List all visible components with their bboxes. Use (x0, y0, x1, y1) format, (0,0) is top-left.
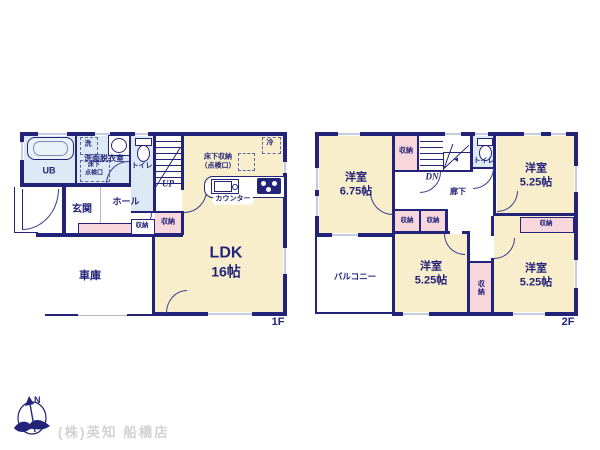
toilet-bowl-icon (137, 145, 150, 162)
room-ne-size: 5.25帖 (520, 176, 552, 190)
wall (493, 132, 496, 216)
floorplan-canvas: UB 洗 洗面脱衣室 床下 点検口 トイレ UP 床下収納 （点検口） 冷 カウ… (0, 0, 600, 450)
wall (417, 132, 419, 172)
window (574, 260, 578, 288)
wall (491, 258, 494, 312)
wall (470, 261, 491, 263)
compass-icon: N (10, 392, 58, 444)
wall (419, 209, 421, 233)
wall (181, 132, 184, 190)
porch-edge (14, 232, 38, 233)
label-ub: UB (43, 165, 56, 176)
compass-arrow (25, 396, 34, 406)
window (551, 132, 566, 136)
label-closet-nw: 収納 (399, 148, 413, 157)
wall (75, 136, 77, 183)
label-toilet-1f: トイレ (132, 163, 153, 172)
label-garage: 車庫 (79, 270, 101, 284)
window (208, 312, 252, 316)
window (315, 168, 319, 190)
balcony-wall (315, 236, 317, 314)
wall (467, 231, 470, 312)
window (38, 132, 67, 136)
window (283, 248, 287, 274)
wall (392, 233, 395, 316)
garage-front-line (45, 314, 78, 316)
label-dn: DN (426, 171, 439, 182)
ldk-name: LDK (210, 243, 243, 263)
window (315, 196, 319, 216)
wall (445, 209, 448, 233)
window (524, 132, 541, 136)
kitchen-sink-inner (214, 181, 232, 192)
label-closet-se: 収納 (540, 220, 553, 228)
balcony-door (332, 233, 358, 237)
stairs-down (420, 136, 443, 169)
underfloor-storage-box (238, 153, 255, 171)
faucet-icon (232, 184, 238, 190)
room-ne-name: 洋室 (520, 162, 552, 176)
wall (392, 132, 395, 233)
label-hallway: 廊下 (450, 187, 466, 197)
garage-front-line (127, 314, 152, 316)
balcony-wall (315, 312, 395, 314)
wall (181, 211, 184, 235)
door-arc (22, 189, 59, 230)
entrance-step-line (100, 187, 101, 223)
floor2-label: 2F (562, 316, 575, 330)
label-underfloor1: 床下収納 (204, 154, 232, 163)
wall (62, 187, 66, 233)
label-room-c: 洋室 5.25帖 (415, 260, 447, 288)
label-hall: ホール (112, 196, 139, 207)
window (338, 132, 360, 136)
room-nw-name: 洋室 (340, 171, 372, 185)
label-counter: カウンター (213, 196, 254, 205)
sink-bowl (111, 138, 127, 153)
burner (266, 187, 271, 192)
label-up: UP (162, 178, 174, 189)
wall (393, 170, 419, 172)
window (403, 312, 429, 316)
label-balcony: バルコニー (334, 272, 376, 283)
label-closet-ldk: 収納 (161, 219, 175, 228)
label-closet-hall: 収納 (136, 222, 149, 230)
wall (36, 233, 183, 237)
wall (574, 132, 578, 316)
label-inspect2: 点検口 (85, 170, 103, 178)
ldk-size: 16帖 (210, 263, 243, 281)
room-se-name: 洋室 (520, 262, 552, 276)
label-ldk: LDK 16帖 (210, 243, 243, 281)
garage-opening (78, 315, 127, 316)
floor1-label: 1F (272, 316, 285, 330)
company-label: (株)英知 船橋店 (58, 421, 170, 441)
window (20, 142, 24, 160)
door-arc (473, 168, 494, 189)
label-fridge: 冷 (267, 140, 274, 149)
room-se-size: 5.25帖 (520, 276, 552, 290)
label-underfloor2: （点検口） (201, 163, 236, 172)
window (283, 162, 287, 173)
label-washer: 洗 (85, 141, 92, 150)
compass-bird (14, 420, 50, 432)
door-leaf (22, 189, 23, 229)
stairs-arrow: ◄ (453, 157, 460, 166)
label-toilet-2f: トイレ (474, 158, 495, 167)
label-closet-a: 収納 (401, 217, 414, 225)
bathtub-inner (33, 141, 68, 156)
label-room-se: 洋室 5.25帖 (520, 262, 552, 290)
burner (272, 181, 277, 186)
window (513, 312, 545, 316)
porch-edge (14, 187, 15, 233)
compass-north-label: N (34, 395, 41, 405)
wall (493, 213, 578, 216)
wall (152, 235, 155, 312)
burner (261, 181, 266, 186)
window (445, 132, 461, 136)
wall (393, 231, 450, 234)
label-closet-mid: 収納 (476, 280, 485, 296)
window (135, 132, 148, 136)
wall (283, 132, 287, 316)
window (475, 132, 488, 136)
window (574, 166, 578, 192)
label-room-nw: 洋室 6.75帖 (340, 171, 372, 199)
label-room-ne: 洋室 5.25帖 (520, 162, 552, 190)
label-inspect1: 床下 (88, 162, 100, 170)
wall (153, 211, 184, 213)
label-entrance: 玄関 (72, 204, 92, 217)
room-nw-size: 6.75帖 (340, 185, 372, 199)
wall (491, 216, 494, 236)
room-c-name: 洋室 (415, 260, 447, 274)
label-closet-b: 収納 (427, 217, 440, 225)
room-c-size: 5.25帖 (415, 274, 447, 288)
